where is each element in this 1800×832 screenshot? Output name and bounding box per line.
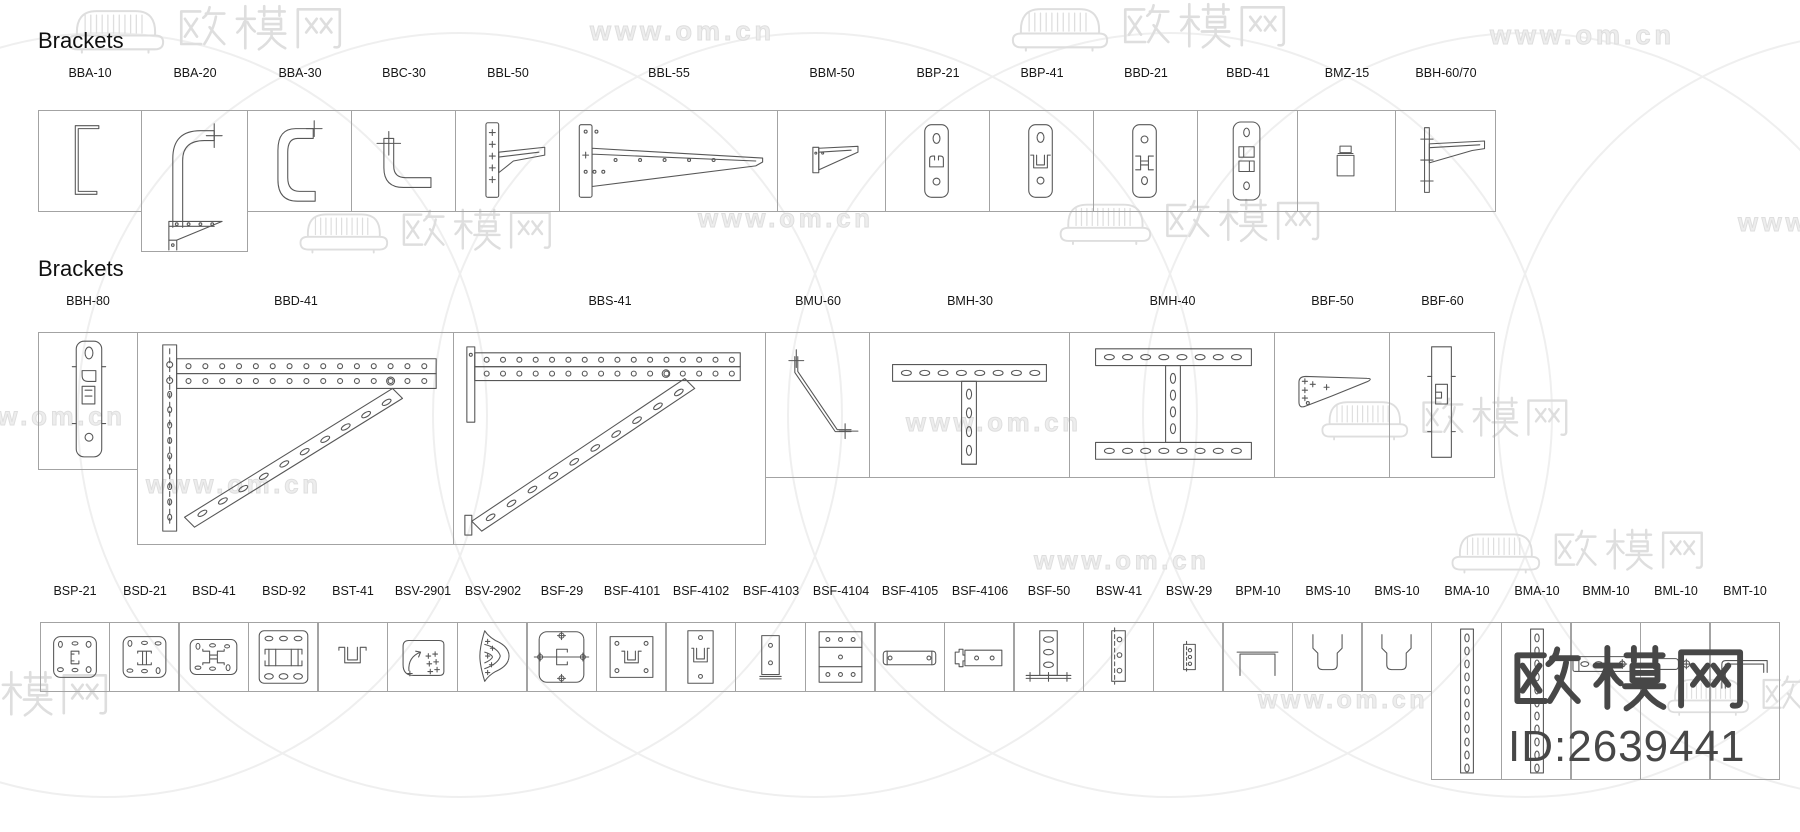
bracket-cell (765, 332, 870, 478)
bracket-label: BSF-4103 (736, 584, 806, 598)
bracket-drawing-bbd41s (1198, 111, 1297, 211)
bracket-drawing-bsp21 (41, 623, 109, 691)
bracket-cell (387, 622, 458, 692)
bracket-drawing-bst41 (318, 623, 387, 691)
bracket-cell (874, 622, 945, 692)
bracket-drawing-bms10 (1293, 623, 1362, 691)
bracket-cell (457, 622, 528, 692)
bracket-drawing-bma10 (1432, 623, 1501, 779)
bracket-label: BMA-10 (1432, 584, 1502, 598)
bracket-cell (141, 110, 248, 252)
bracket-cell (137, 332, 454, 545)
bracket-label: BMH-30 (870, 294, 1070, 308)
bracket-drawing-bsf4103 (736, 623, 805, 691)
bracket-label: BBP-21 (886, 66, 990, 80)
bracket-cell (1069, 332, 1275, 478)
bracket-drawing-bbh80 (39, 333, 137, 469)
bracket-cell (178, 622, 249, 692)
bracket-drawing-bpm10 (1223, 623, 1292, 691)
sofa-icon (296, 206, 392, 254)
bracket-label: BMM-10 (1571, 584, 1641, 598)
brand-watermark-text (1510, 642, 1746, 721)
bracket-label: BSF-4105 (875, 584, 945, 598)
bracket-cell (735, 622, 806, 692)
bracket-cell (1297, 110, 1396, 212)
bracket-drawing-bsf4101 (597, 623, 666, 691)
brand-glyphs (1120, 0, 1288, 53)
bracket-drawing-bmh40 (1070, 333, 1274, 477)
bracket-drawing-bsv2902 (458, 623, 527, 691)
bracket-drawing-bsf4106 (945, 623, 1014, 691)
bracket-cell (885, 110, 990, 212)
bracket-drawing-bsd41 (179, 623, 248, 691)
watermark-logo (1008, 0, 1288, 53)
bracket-cell (455, 110, 560, 212)
bracket-drawing-bbl50 (456, 111, 559, 211)
bracket-label: BMZ-15 (1298, 66, 1396, 80)
bracket-cell (989, 110, 1094, 212)
bracket-cell (805, 622, 876, 692)
bracket-drawing-bsf50 (1014, 623, 1083, 691)
bracket-label: BBD-21 (1094, 66, 1198, 80)
bracket-cell (1197, 110, 1298, 212)
bracket-drawing-bmz15 (1298, 111, 1395, 211)
section1-heading: Brackets (38, 28, 124, 54)
bracket-drawing-bbd41b (138, 333, 453, 544)
bracket-drawing-bsf4104 (806, 623, 875, 691)
sofa-icon (1008, 1, 1112, 53)
bracket-drawing-bsw29 (1154, 623, 1223, 691)
bracket-drawing-bsf4102 (666, 623, 735, 691)
section2-heading: Brackets (38, 256, 124, 282)
bracket-drawing-bba20 (142, 111, 247, 251)
bracket-label: BBS-41 (454, 294, 766, 308)
watermark-url-text: www.om.cn (1738, 208, 1800, 237)
bracket-cell (1395, 110, 1496, 212)
bracket-label: BSF-4102 (666, 584, 736, 598)
bracket-cell (1013, 622, 1084, 692)
bracket-label: BBM-50 (778, 66, 886, 80)
watermark-id-text: ID:2639441 (1508, 722, 1746, 772)
bracket-drawing-bsf4105 (875, 623, 944, 691)
bracket-label: BMH-40 (1070, 294, 1275, 308)
bracket-drawing-bmu60 (766, 333, 869, 477)
watermark-logo (296, 206, 554, 254)
bracket-drawing-bsd21 (110, 623, 179, 691)
bracket-cell (944, 622, 1015, 692)
bracket-label: BMU-60 (766, 294, 870, 308)
bracket-drawing-bba30 (248, 111, 351, 211)
bracket-cell (1093, 110, 1198, 212)
bracket-label: BSF-50 (1014, 584, 1084, 598)
bracket-label: BML-10 (1641, 584, 1711, 598)
bracket-label: BBP-41 (990, 66, 1094, 80)
bracket-label: BSF-4101 (597, 584, 667, 598)
sofa-icon (1448, 526, 1544, 574)
watermark-logo (1448, 526, 1706, 574)
bracket-label: BSP-21 (40, 584, 110, 598)
bracket-cell (317, 622, 388, 692)
bracket-drawing-bmh30 (870, 333, 1069, 477)
bracket-drawing-bbc30 (352, 111, 455, 211)
brand-glyphs (1551, 526, 1706, 574)
bracket-label: BMS-10 (1293, 584, 1363, 598)
bracket-cell (38, 332, 138, 470)
catalog-canvas: Brackets Brackets www.om.cnwww.om.cnwww.… (0, 0, 1800, 832)
bracket-cell (109, 622, 180, 692)
bracket-cell (1361, 622, 1432, 692)
bracket-cell (248, 622, 319, 692)
brand-glyphs (176, 2, 344, 55)
bracket-cell (1222, 622, 1293, 692)
watermark-url-text: www.om.cn (1034, 546, 1210, 575)
bracket-cell (1274, 332, 1390, 478)
bracket-drawing-bbh6070 (1396, 111, 1495, 211)
bracket-drawing-bms10 (1362, 623, 1431, 691)
watermark-url-text: www.om.cn (590, 16, 775, 47)
bracket-cell (38, 110, 142, 212)
bracket-label: BSF-4106 (945, 584, 1015, 598)
bracket-label: BSV-2902 (458, 584, 528, 598)
bracket-drawing-bbp21 (886, 111, 989, 211)
brand-glyphs (1510, 642, 1746, 716)
bracket-label: BMT-10 (1710, 584, 1780, 598)
bracket-label: BSD-41 (179, 584, 249, 598)
bracket-drawing-bbs41 (454, 333, 765, 544)
brand-glyphs (399, 206, 554, 254)
bracket-label: BBF-60 (1390, 294, 1495, 308)
bracket-label: BPM-10 (1223, 584, 1293, 598)
bracket-drawing-bbf50 (1275, 333, 1389, 477)
bracket-drawing-bbd21 (1094, 111, 1197, 211)
bracket-label: BSW-41 (1084, 584, 1154, 598)
bracket-label: BBC-30 (352, 66, 456, 80)
bracket-label: BSF-4104 (806, 584, 876, 598)
bracket-cell (1389, 332, 1495, 478)
bracket-label: BBF-50 (1275, 294, 1390, 308)
bracket-label: BBA-30 (248, 66, 352, 80)
bracket-label: BMS-10 (1362, 584, 1432, 598)
bracket-drawing-bsv2901 (388, 623, 457, 691)
bracket-label: BBD-41 (138, 294, 454, 308)
bracket-cell (869, 332, 1070, 478)
bracket-drawing-bbp41 (990, 111, 1093, 211)
bracket-drawing-bbl55 (560, 111, 777, 211)
bracket-cell (1292, 622, 1363, 692)
bracket-cell (247, 110, 352, 212)
bracket-cell (596, 622, 667, 692)
bracket-drawing-bbf60 (1390, 333, 1494, 477)
bracket-cell (777, 110, 886, 212)
bracket-label: BMA-10 (1502, 584, 1572, 598)
bracket-label: BSD-92 (249, 584, 319, 598)
bracket-cell (453, 332, 766, 545)
bracket-label: BSW-29 (1154, 584, 1224, 598)
bracket-cell (1153, 622, 1224, 692)
bracket-drawing-bbm50 (778, 111, 885, 211)
bracket-drawing-bba10 (39, 111, 141, 211)
bracket-label: BSV-2901 (388, 584, 458, 598)
bracket-cell (40, 622, 110, 692)
bracket-label: BBH-60/70 (1396, 66, 1496, 80)
bracket-label: BST-41 (318, 584, 388, 598)
bracket-label: BSF-29 (527, 584, 597, 598)
bracket-drawing-bsw41 (1084, 623, 1153, 691)
bracket-cell (1083, 622, 1154, 692)
bracket-cell (526, 622, 597, 692)
bracket-label: BSD-21 (110, 584, 180, 598)
bracket-cell (351, 110, 456, 212)
bracket-label: BBA-10 (38, 66, 142, 80)
bracket-cell (559, 110, 778, 212)
bracket-cell (665, 622, 736, 692)
bracket-label: BBL-50 (456, 66, 560, 80)
bracket-label: BBA-20 (142, 66, 248, 80)
bracket-drawing-bsd92 (249, 623, 318, 691)
bracket-drawing-bsf29 (527, 623, 596, 691)
watermark-url-text: www.om.cn (1490, 20, 1675, 51)
bracket-cell (1431, 622, 1502, 780)
bracket-label: BBH-80 (38, 294, 138, 308)
bracket-label: BBL-55 (560, 66, 778, 80)
bracket-label: BBD-41 (1198, 66, 1298, 80)
